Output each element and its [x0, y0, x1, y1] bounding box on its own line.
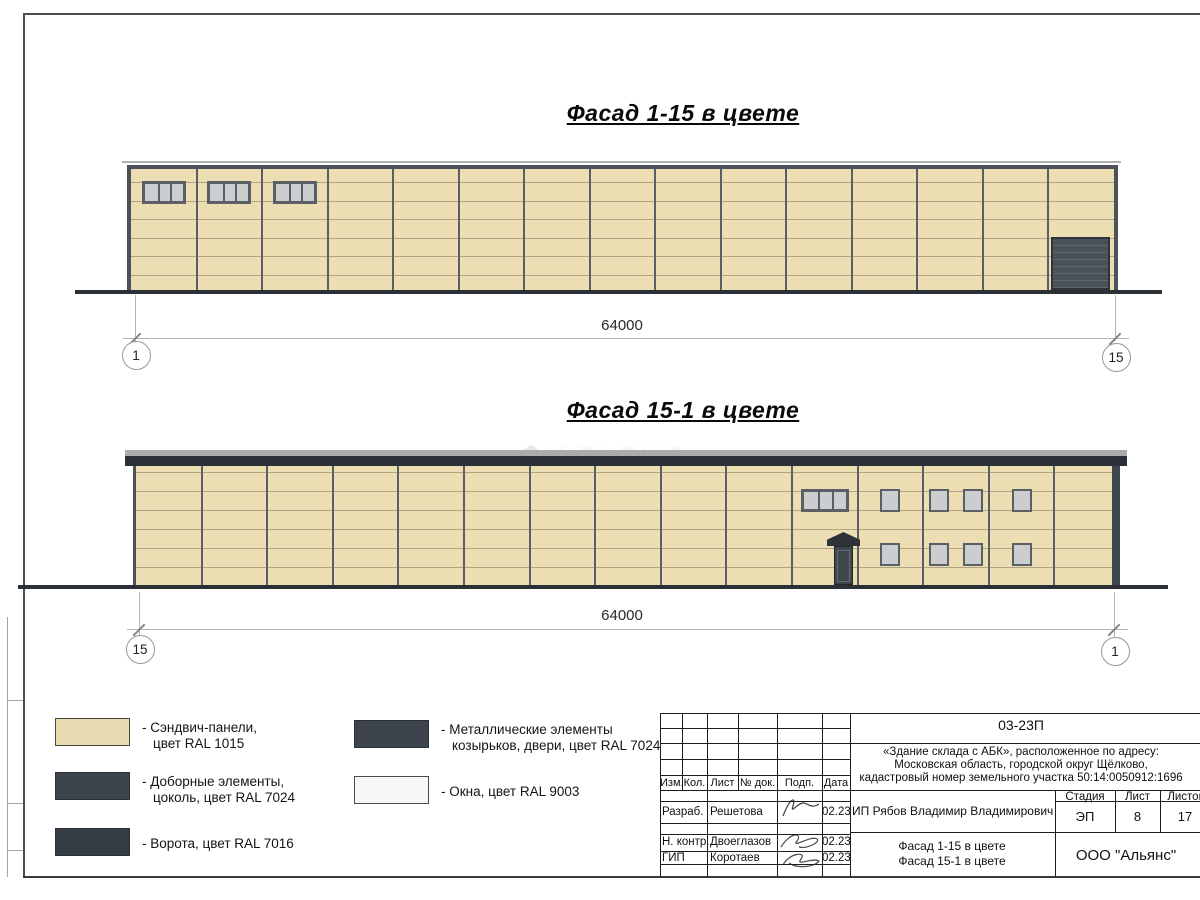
- facade-1-title: Фасад 1-15 в цвете: [567, 100, 800, 127]
- parapet-band: [125, 456, 1127, 466]
- window-mullion: [170, 184, 172, 201]
- title-block-line: [738, 713, 739, 790]
- margin-stamp-line: [7, 617, 8, 877]
- panel-seam-line: [131, 275, 1114, 276]
- square-window: [963, 543, 983, 566]
- facade-1-drawing: [127, 165, 1118, 290]
- column-line: [725, 466, 727, 585]
- title-block-line: [660, 713, 661, 877]
- window-mullion: [223, 184, 225, 201]
- panel-seam-line: [131, 238, 1114, 239]
- panel-seam-line: [131, 219, 1114, 220]
- column-line: [332, 466, 334, 585]
- square-window: [929, 543, 949, 566]
- title-block-line: [660, 834, 850, 835]
- drawing-sheet: Фасад 1-15 в цвете Фасад 15-1 в цвете АЛ…: [0, 0, 1200, 900]
- column-line: [392, 169, 394, 290]
- col-header-kol: Кол.: [682, 777, 707, 789]
- column-line: [458, 169, 460, 290]
- project-address-line: Московская область, городской округ Щёлк…: [852, 759, 1190, 771]
- signature-scribble: [780, 794, 822, 820]
- legend-label-line: - Доборные элементы,: [142, 774, 295, 790]
- sheets-value: 17: [1160, 809, 1200, 824]
- frame-top: [23, 13, 1200, 15]
- title-block-line: [707, 713, 708, 877]
- gate: [1051, 237, 1110, 290]
- sig-role: Н. контр.: [662, 836, 708, 848]
- col-header-list: Лист: [707, 777, 738, 789]
- column-line: [1053, 466, 1055, 585]
- column-line: [523, 169, 525, 290]
- frame-left: [23, 13, 25, 878]
- facade-2-drawing: [133, 466, 1120, 585]
- title-block-line: [660, 864, 850, 865]
- window-mullion: [832, 492, 834, 509]
- col-header-data: Дата: [822, 777, 850, 789]
- square-window: [880, 543, 900, 566]
- sig-name: Решетова: [710, 806, 776, 818]
- title-block-line: [850, 832, 1200, 833]
- column-line: [785, 169, 787, 290]
- client-name: ИП Рябов Владимир Владимирович: [852, 804, 1052, 818]
- organization-name: ООО "Альянс": [1057, 847, 1195, 864]
- sig-name: Коротаев: [710, 852, 776, 864]
- legend-swatch: [55, 772, 130, 800]
- legend-label-line: цвет RAL 1015: [142, 736, 257, 752]
- door-leaf: [837, 550, 850, 582]
- window-mullion: [235, 184, 237, 201]
- roof-edge-line: [122, 161, 1121, 163]
- column-line: [266, 466, 268, 585]
- ground-line: [18, 585, 1168, 589]
- stage-value: ЭП: [1055, 809, 1115, 824]
- dimension-line: [123, 338, 1129, 339]
- margin-stamp-divider: [7, 700, 23, 701]
- title-block-line: [660, 801, 850, 802]
- column-line: [529, 466, 531, 585]
- col-header-ndok: № док.: [738, 777, 777, 789]
- entrance-canopy: [827, 532, 860, 546]
- dimension-label: 64000: [601, 317, 643, 334]
- axis-marker: 1: [122, 341, 151, 370]
- title-block-line: [660, 743, 1200, 744]
- panel-seam-line: [131, 256, 1114, 257]
- column-line: [916, 169, 918, 290]
- title-block-line: [1115, 790, 1116, 832]
- ground-line: [75, 290, 1162, 294]
- square-window: [1012, 489, 1032, 512]
- sig-name: Двоеглазов: [710, 836, 776, 848]
- column-line: [660, 466, 662, 585]
- doc-number: 03-23П: [850, 717, 1192, 733]
- column-line: [982, 169, 984, 290]
- window-mullion: [301, 184, 303, 201]
- square-window: [1012, 543, 1032, 566]
- column-line: [463, 466, 465, 585]
- axis-marker: 15: [1102, 343, 1131, 372]
- panel-seam-line: [136, 567, 1120, 568]
- column-line: [851, 169, 853, 290]
- dimension-label: 64000: [601, 607, 643, 624]
- title-block-line: [660, 775, 850, 776]
- square-window: [929, 489, 949, 512]
- sig-role: Разраб.: [662, 806, 708, 818]
- legend-label: - Окна, цвет RAL 9003: [441, 784, 579, 800]
- legend-label: - Ворота, цвет RAL 7016: [142, 836, 294, 852]
- title-block-line: [777, 713, 778, 877]
- legend-swatch: [55, 828, 130, 856]
- column-line: [261, 169, 263, 290]
- ribbon-window: [801, 489, 849, 512]
- title-block-line: [682, 713, 683, 790]
- title-block-line: [1160, 790, 1161, 832]
- legend-label-line: - Металлические элементы: [441, 722, 660, 738]
- corner-trim: [1112, 466, 1120, 585]
- title-block-line: [660, 728, 850, 729]
- legend-swatch: [55, 718, 130, 746]
- sig-date: 02.23: [822, 836, 850, 848]
- legend-label: - Доборные элементы,цоколь, цвет RAL 702…: [142, 774, 295, 806]
- drawing-title-line: Фасад 15-1 в цвете: [852, 854, 1052, 868]
- window-mullion: [158, 184, 160, 201]
- window-mullion: [818, 492, 820, 509]
- panel-seam-line: [136, 472, 1120, 473]
- legend-label-line: - Ворота, цвет RAL 7016: [142, 836, 294, 852]
- margin-stamp-divider: [7, 850, 23, 851]
- column-line: [791, 466, 793, 585]
- legend-label-line: козырьков, двери, цвет RAL 7024: [441, 738, 660, 754]
- ribbon-window: [142, 181, 186, 204]
- column-line: [922, 466, 924, 585]
- entrance-door: [834, 546, 853, 585]
- facade-2-title: Фасад 15-1 в цвете: [567, 397, 800, 424]
- sig-date: 02.23: [822, 806, 850, 818]
- window-mullion: [289, 184, 291, 201]
- column-line: [327, 169, 329, 290]
- ribbon-window: [207, 181, 251, 204]
- column-line: [988, 466, 990, 585]
- title-block-line: [1055, 790, 1056, 877]
- column-line: [857, 466, 859, 585]
- col-header-izm: Изм.: [660, 777, 682, 789]
- panel-seam-line: [136, 529, 1120, 530]
- column-line: [1047, 169, 1049, 290]
- frame-bottom: [23, 876, 1200, 878]
- column-line: [201, 466, 203, 585]
- title-block-line: [822, 713, 823, 877]
- column-line: [196, 169, 198, 290]
- dimension-line: [127, 629, 1128, 630]
- title-block-line: [660, 790, 1200, 791]
- sheet-value: 8: [1115, 809, 1160, 824]
- extension-line: [1115, 295, 1116, 341]
- square-window: [963, 489, 983, 512]
- legend-label: - Металлические элементыкозырьков, двери…: [441, 722, 660, 754]
- legend-label-line: - Окна, цвет RAL 9003: [441, 784, 579, 800]
- drawing-title-line: Фасад 1-15 в цвете: [852, 839, 1052, 853]
- column-line: [594, 466, 596, 585]
- sig-role: ГИП: [662, 852, 708, 864]
- legend-label-line: - Сэндвич-панели,: [142, 720, 257, 736]
- margin-stamp-divider: [7, 803, 23, 804]
- title-block-line: [660, 713, 1200, 714]
- column-line: [720, 169, 722, 290]
- legend-label: - Сэндвич-панели,цвет RAL 1015: [142, 720, 257, 752]
- legend-swatch: [354, 720, 429, 748]
- sig-date: 02.23: [822, 852, 850, 864]
- extension-line: [135, 295, 136, 341]
- title-block-line: [660, 851, 850, 852]
- legend-label-line: цоколь, цвет RAL 7024: [142, 790, 295, 806]
- column-line: [589, 169, 591, 290]
- ribbon-window: [273, 181, 317, 204]
- title-block-line: [850, 713, 851, 877]
- title-block-line: [660, 759, 850, 760]
- column-line: [654, 169, 656, 290]
- axis-marker: 1: [1101, 637, 1130, 666]
- project-address-line: кадастровый номер земельного участка 50:…: [852, 772, 1190, 784]
- project-address-line: «Здание склада с АБК», расположенное по …: [852, 746, 1190, 758]
- legend-swatch: [354, 776, 429, 804]
- column-line: [397, 466, 399, 585]
- axis-marker: 15: [126, 635, 155, 664]
- square-window: [880, 489, 900, 512]
- title-block-line: [1055, 801, 1200, 802]
- col-header-podp: Подп.: [777, 777, 822, 789]
- title-block-line: [660, 823, 850, 824]
